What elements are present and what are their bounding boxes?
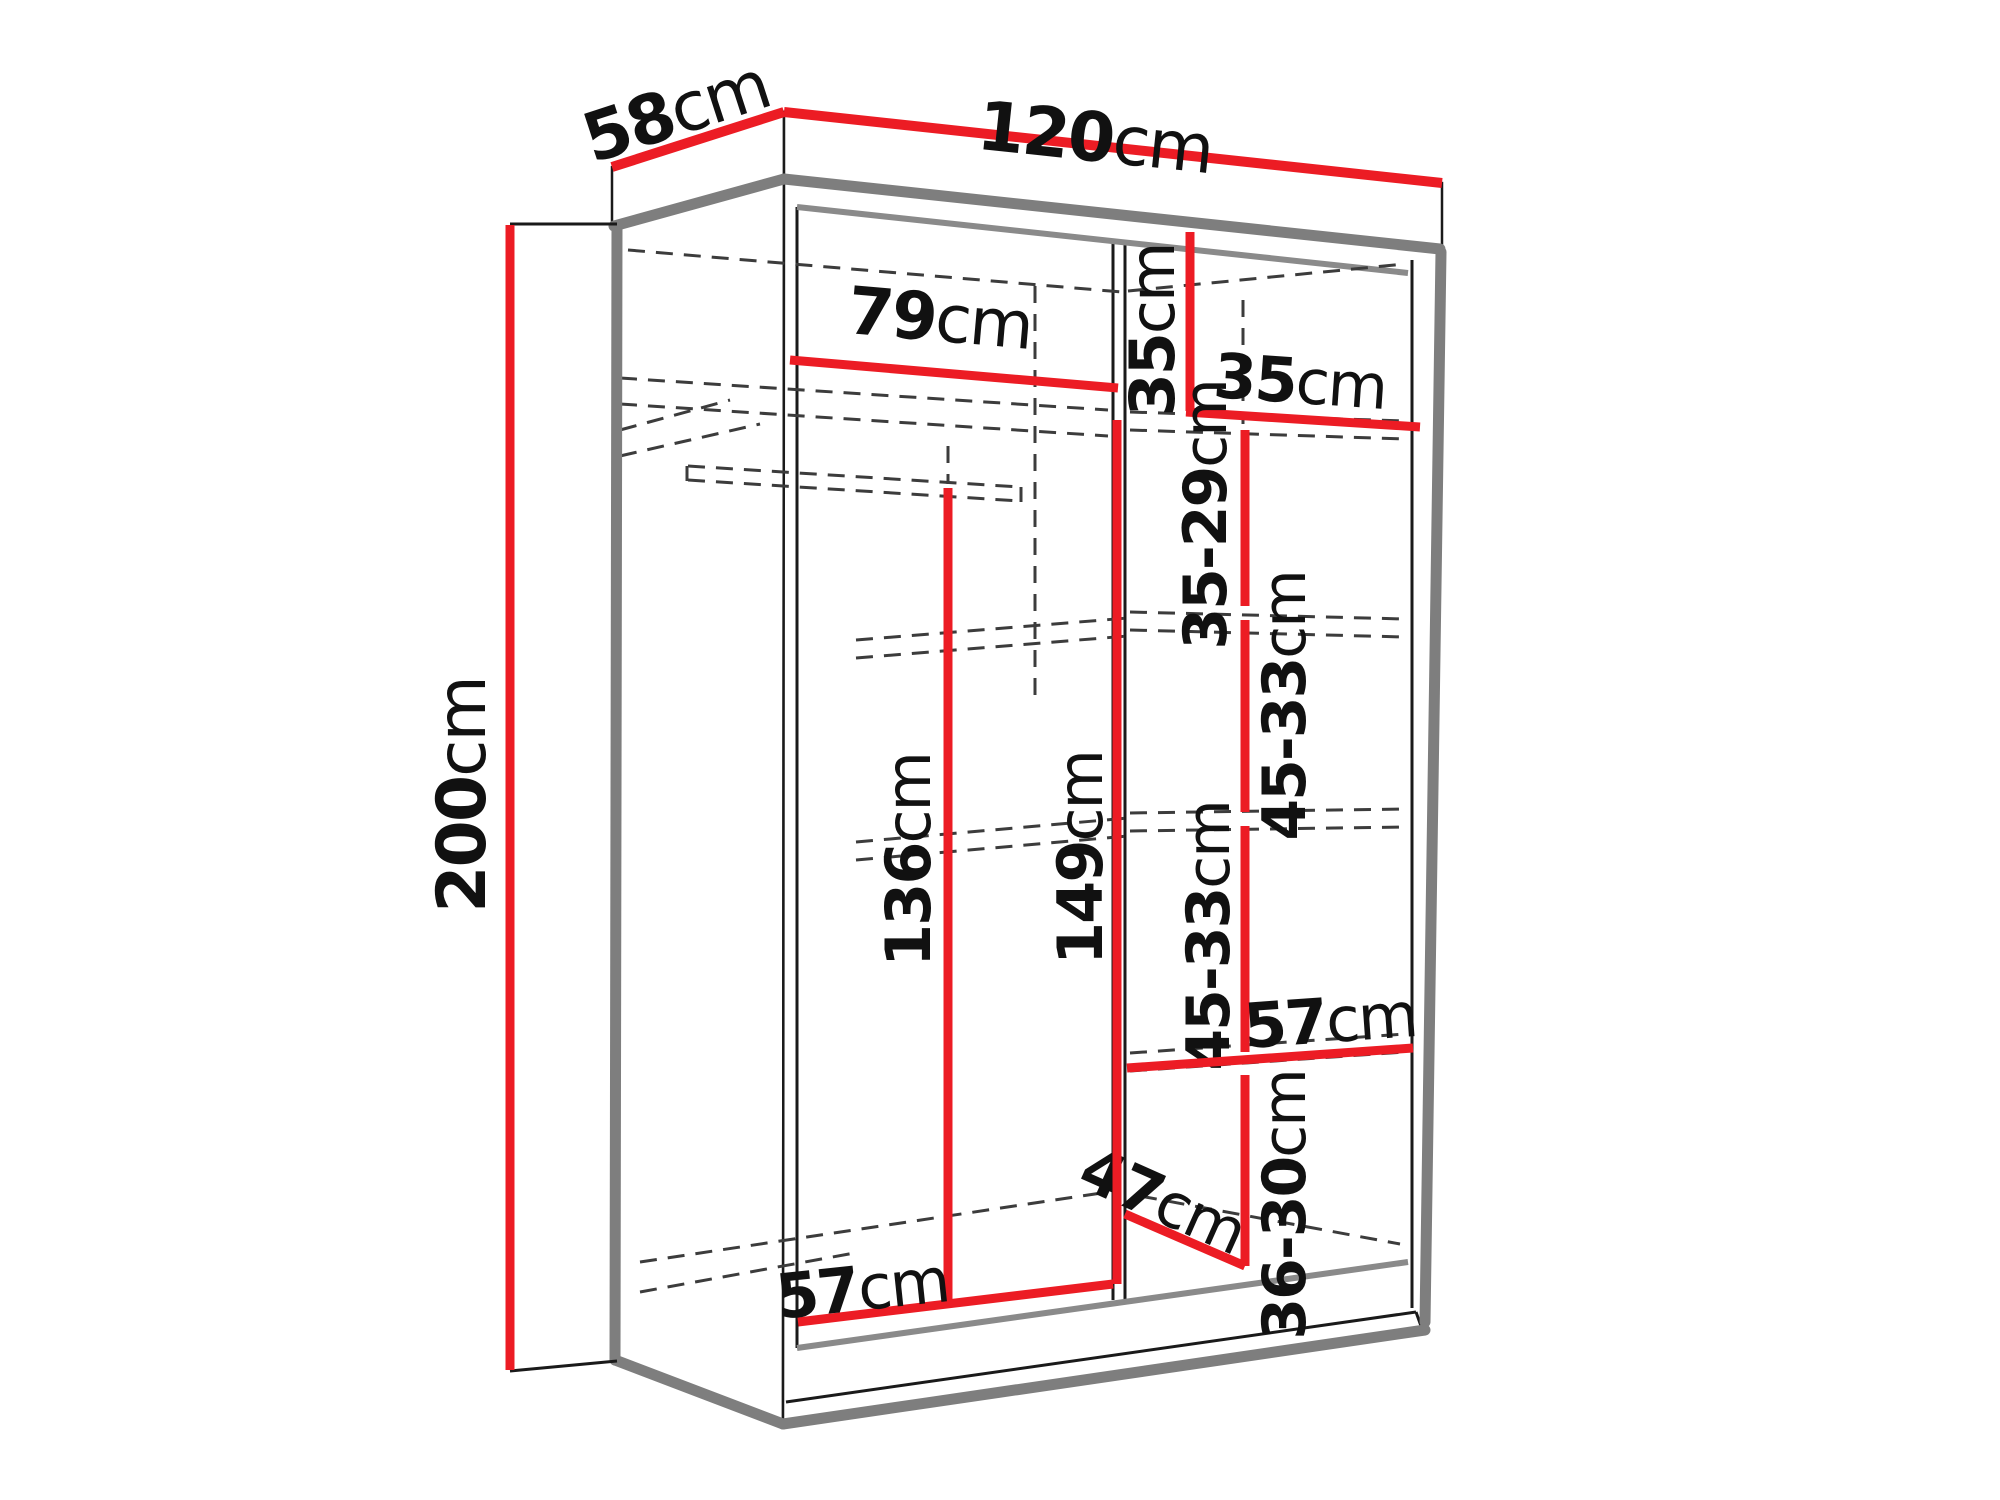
dimension-label-right-gap-1: 35-29cm: [1171, 380, 1241, 649]
dimension-label-right-shelf-width: 57cm: [1241, 978, 1418, 1063]
dimension-label-hanging-height: 136cm: [872, 753, 945, 967]
dimension-right-gap-1: 35-29cm: [1171, 380, 1245, 649]
dimension-right-gap-4: 36-30cm: [1245, 1070, 1320, 1339]
dimension-label-right-gap-4: 36-30cm: [1250, 1070, 1320, 1339]
dimension-right-gap-3: 45-33cm: [1174, 801, 1245, 1070]
dimension-label-interior-height: 149cm: [1044, 751, 1117, 965]
wardrobe-dimension-diagram: Sliding wardrobe interior dimensions dia…: [0, 0, 2000, 1500]
dimension-label-right-gap-3: 45-33cm: [1174, 801, 1244, 1070]
diagram-canvas: Sliding wardrobe interior dimensions dia…: [0, 0, 2000, 1500]
dimension-label-height: 200cm: [423, 677, 502, 913]
dimension-right-gap-2: 45-33cm: [1245, 571, 1320, 840]
left-outer-edge: [615, 226, 617, 1360]
dimension-label-left-interior-width: 79cm: [845, 272, 1035, 365]
dimension-tick: [510, 1361, 617, 1371]
dimension-height: 200cm: [423, 224, 618, 1371]
dimension-label-right-gap-2: 45-33cm: [1250, 571, 1320, 840]
side-panel-face: [615, 179, 784, 1424]
